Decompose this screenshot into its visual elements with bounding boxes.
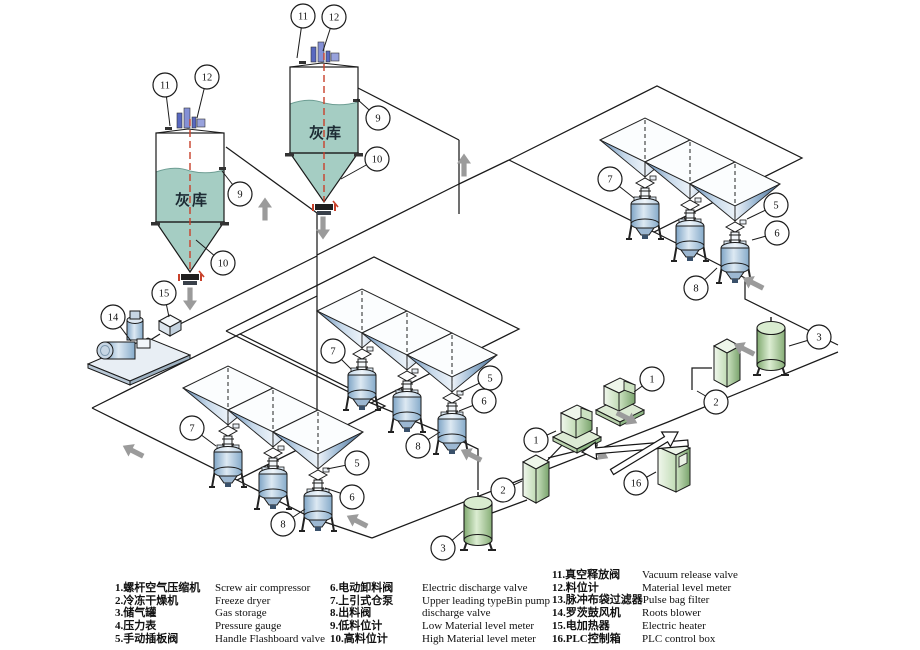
pump-outlet-cone	[636, 228, 654, 235]
silo-foot	[285, 153, 294, 157]
callout-number: 11	[160, 81, 170, 92]
legend-item-zh: 6.电动卸料阀	[330, 582, 422, 595]
instrument-icon	[326, 51, 330, 62]
legend-item: 8.出料阀discharge valve	[330, 607, 550, 620]
bin-pump	[433, 391, 471, 454]
callout-number: 10	[218, 259, 229, 270]
electric-discharge-valve	[686, 210, 694, 221]
legend-item-en: Upper leading typeBin pump	[422, 595, 550, 608]
valve-handle	[233, 424, 239, 428]
legend-item-zh: 12.料位计	[552, 582, 642, 595]
screw-air-compressor	[596, 378, 644, 426]
pump-outlet-cone	[681, 250, 699, 257]
flow-arrow-upleft	[740, 272, 767, 295]
legend-item-zh: 7.上引式仓泵	[330, 595, 422, 608]
electric-discharge-valve	[403, 381, 411, 392]
instrument-icon	[318, 42, 324, 62]
discharge-valve	[687, 257, 693, 261]
callout-number: 1	[533, 436, 538, 447]
instrument-icon	[192, 117, 196, 128]
diagram-canvas: 灰库灰库111291015141112910756875687568112233…	[0, 0, 920, 650]
silo-discharge-valve	[179, 271, 204, 285]
callout-6: 6	[459, 389, 496, 413]
callout-number: 9	[375, 114, 380, 125]
legend-item-en: discharge valve	[422, 607, 491, 620]
legend-item-zh: 13.脉冲布袋过滤器	[552, 594, 643, 607]
legend-item-en: Electric heater	[642, 620, 706, 633]
valve-handle	[740, 220, 746, 224]
callout-number: 6	[774, 229, 779, 240]
discharge-valve	[270, 505, 276, 509]
legend-item: 9.低料位计Low Material level meter	[330, 620, 550, 633]
discharge-valve	[359, 406, 365, 410]
callout-2: 2	[697, 390, 728, 414]
pump-outlet-cone	[398, 421, 416, 428]
pipe	[178, 256, 317, 325]
legend-item-en: Roots blower	[642, 607, 701, 620]
callout-7: 7	[180, 416, 216, 446]
callout-number: 9	[237, 190, 242, 201]
callout-number: 8	[280, 520, 285, 531]
legend-item-zh: 1.螺杆空气压缩机	[115, 582, 215, 595]
discharge-valve	[732, 279, 738, 283]
discharge-valve	[404, 428, 410, 432]
dryer-front	[523, 462, 536, 503]
dryer-side	[727, 346, 740, 387]
pipe	[492, 500, 527, 513]
callout-number: 6	[349, 493, 354, 504]
callout-number: 10	[372, 155, 383, 166]
callout-number: 7	[330, 347, 335, 358]
dryer-side	[536, 462, 549, 503]
callout-12: 12	[322, 5, 346, 51]
callout-number: 1	[649, 375, 654, 386]
pipe	[240, 296, 317, 334]
valve-handle	[367, 347, 373, 351]
valve-handle	[695, 198, 701, 202]
silo-foot	[354, 153, 363, 157]
plc-front	[658, 447, 676, 492]
tank-top	[757, 322, 785, 335]
callout-number: 6	[481, 397, 486, 408]
callout-number: 5	[354, 459, 359, 470]
callout-number: 12	[329, 13, 340, 24]
legend-item-zh: 4.压力表	[115, 620, 215, 633]
bin-pump	[299, 468, 337, 531]
legend-item-zh: 10.高料位计	[330, 633, 422, 646]
legend-column-2: 6.电动卸料阀Electric discharge valve7.上引式仓泵Up…	[330, 582, 550, 646]
valve-handle	[412, 369, 418, 373]
callout-number: 3	[440, 544, 445, 555]
freeze-dryer	[523, 455, 549, 503]
callout-number: 11	[298, 12, 308, 23]
pump-outlet-cone	[309, 520, 327, 527]
callout-8: 8	[684, 268, 717, 300]
legend-item-en: High Material level meter	[422, 633, 536, 646]
diagram: 灰库灰库111291015141112910756875687568112233…	[0, 0, 920, 650]
callout-number: 3	[816, 333, 821, 344]
vacuum-valve-nub	[165, 127, 172, 130]
callout-number: 8	[693, 284, 698, 295]
flow-arrow-down	[316, 217, 330, 240]
pump-outlet-cone	[353, 399, 371, 406]
callout-number: 5	[487, 374, 492, 385]
callout-16: 16	[624, 471, 656, 495]
legend-item: 6.电动卸料阀Electric discharge valve	[330, 582, 550, 595]
flow-arrow-upleft	[120, 440, 147, 463]
pipe	[317, 184, 459, 255]
legend-item-en: Freeze dryer	[215, 595, 270, 608]
valve-handle	[278, 446, 284, 450]
legend-item: 7.上引式仓泵Upper leading typeBin pump	[330, 595, 550, 608]
flow-arrow-up	[258, 198, 272, 221]
legend-item: 5.手动插板阀Handle Flashboard valve	[115, 633, 325, 646]
legend-item-zh: 15.电加热器	[552, 620, 642, 633]
legend-item: 10.高料位计High Material level meter	[330, 633, 550, 646]
instrument-icon	[184, 108, 190, 128]
gas-storage-tank	[460, 492, 496, 550]
pump-outlet-cone	[443, 443, 461, 450]
callout-3: 3	[431, 531, 463, 560]
legend-item: 15.电加热器Electric heater	[552, 620, 738, 633]
legend-item-en: Handle Flashboard valve	[215, 633, 325, 646]
tank-top	[464, 497, 492, 510]
electric-discharge-valve	[314, 480, 322, 491]
legend-item-en: Screw air compressor	[215, 582, 310, 595]
callout-number: 7	[607, 175, 612, 186]
level-meter-nub	[219, 167, 226, 170]
callout-number: 7	[189, 424, 194, 435]
callout-number: 14	[108, 313, 119, 324]
legend-item: 11.真空释放阀Vacuum release valve	[552, 569, 738, 582]
valve-handle	[650, 176, 656, 180]
electric-discharge-valve	[224, 436, 232, 447]
silo-label: 灰库	[309, 124, 343, 142]
callout-number: 12	[202, 73, 213, 84]
hopper-row-bottom-left	[183, 366, 363, 531]
legend-item: 14.罗茨鼓风机Roots blower	[552, 607, 738, 620]
callout-number: 2	[713, 398, 718, 409]
legend-item-zh: 11.真空释放阀	[552, 569, 642, 582]
legend-item-en: Vacuum release valve	[642, 569, 738, 582]
callout-1: 1	[524, 428, 556, 452]
electric-discharge-valve	[269, 458, 277, 469]
callout-11: 11	[153, 73, 177, 126]
callout-9: 9	[357, 99, 390, 130]
instrument-icon	[331, 53, 339, 61]
discharge-valve	[449, 450, 455, 454]
legend-item: 4.压力表Pressure gauge	[115, 620, 325, 633]
legend-item-zh: 5.手动插板阀	[115, 633, 215, 646]
callout-12: 12	[195, 65, 219, 118]
vacuum-valve-nub	[299, 61, 306, 64]
dryer-front	[714, 346, 727, 387]
flow-arrow-upleft	[344, 510, 371, 533]
silo-foot	[151, 222, 160, 226]
pump-outlet-cone	[726, 272, 744, 279]
silo-label: 灰库	[175, 191, 209, 209]
legend-item-zh: 3.储气罐	[115, 607, 215, 620]
bin-pump	[716, 220, 754, 283]
legend-item: 2.冷冻干燥机Freeze dryer	[115, 595, 325, 608]
callout-1: 1	[634, 367, 664, 392]
callout-number: 8	[415, 442, 420, 453]
legend-item-en: Pressure gauge	[215, 620, 281, 633]
callout-15: 15	[152, 281, 176, 317]
callout-9: 9	[222, 171, 252, 206]
legend-column-1: 1.螺杆空气压缩机Screw air compressor2.冷冻干燥机Free…	[115, 582, 325, 646]
discharge-valve	[315, 527, 321, 531]
legend-item-zh: 14.罗茨鼓风机	[552, 607, 642, 620]
gas-storage-tank	[753, 317, 789, 375]
callout-number: 2	[500, 486, 505, 497]
callout-7: 7	[321, 339, 351, 369]
discharge-valve	[642, 235, 648, 239]
electric-heater	[159, 315, 181, 336]
pipe-network	[92, 86, 838, 538]
pump-outlet-cone	[219, 476, 237, 483]
pump-outlet-cone	[264, 498, 282, 505]
legend-item-zh: 8.出料阀	[330, 607, 422, 620]
legend-item-en: Material level meter	[642, 582, 731, 595]
callout-3: 3	[789, 325, 831, 349]
legend-column-3: 11.真空释放阀Vacuum release valve12.料位计Materi…	[552, 569, 738, 645]
callout-6: 6	[752, 221, 789, 245]
blower-outlet	[137, 339, 150, 348]
legend-item: 16.PLC控制箱PLC control box	[552, 633, 738, 646]
legend-item: 13.脉冲布袋过滤器Pulse bag filter	[552, 594, 738, 607]
callout-number: 5	[773, 201, 778, 212]
legend-item-en: Electric discharge valve	[422, 582, 527, 595]
discharge-valve	[225, 483, 231, 487]
legend-item: 3.储气罐Gas storage	[115, 607, 325, 620]
instrument-icon	[177, 113, 182, 128]
callout-7: 7	[598, 167, 634, 198]
legend-item-en: Gas storage	[215, 607, 267, 620]
ash-silo-right: 灰库	[285, 42, 363, 215]
hopper-row-top-right	[600, 118, 780, 283]
electric-discharge-valve	[731, 232, 739, 243]
pipe	[692, 368, 712, 390]
legend-item-zh: 9.低料位计	[330, 620, 422, 633]
legend-item-zh: 16.PLC控制箱	[552, 633, 642, 646]
callout-10: 10	[196, 240, 235, 275]
instrument-icon	[197, 119, 205, 127]
instrument-icon	[311, 47, 316, 62]
flow-arrow-down	[183, 288, 197, 311]
legend-item-en: Pulse bag filter	[643, 594, 710, 607]
silo-foot	[220, 222, 229, 226]
flow-arrow-upleft	[458, 444, 485, 467]
legend-item-en: PLC control box	[642, 633, 715, 646]
electric-discharge-valve	[358, 359, 366, 370]
electric-discharge-valve	[641, 188, 649, 199]
legend-item-en: Low Material level meter	[422, 620, 534, 633]
callout-number: 15	[159, 289, 170, 300]
legend-item: 1.螺杆空气压缩机Screw air compressor	[115, 582, 325, 595]
electric-discharge-valve	[448, 403, 456, 414]
callout-number: 16	[631, 479, 642, 490]
legend-item: 12.料位计Material level meter	[552, 582, 738, 595]
legend-item-zh: 2.冷冻干燥机	[115, 595, 215, 608]
silo-top-instruments	[177, 108, 205, 128]
